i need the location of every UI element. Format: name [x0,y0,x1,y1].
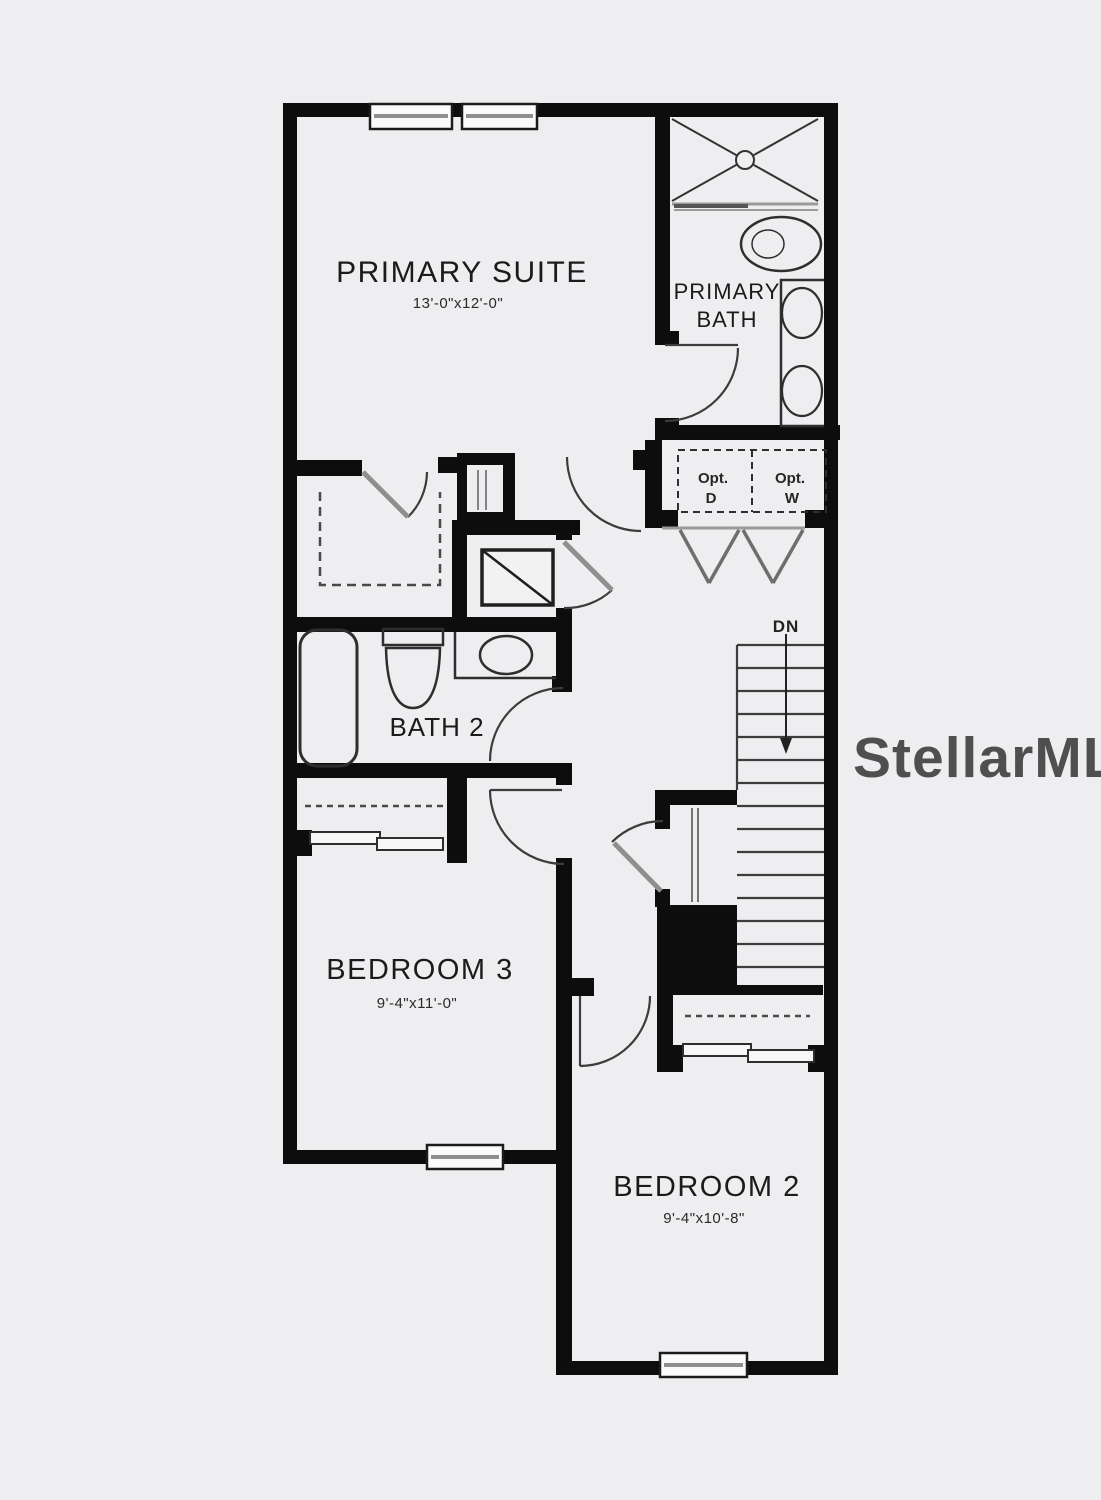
bedroom2-dimensions: 9'-4"x10'-8" [663,1210,745,1227]
primary-bath-label-line1: PRIMARY [674,279,781,304]
bypass-door [748,1050,814,1062]
opt-washer-label-line1: Opt. [775,470,805,487]
primary-suite-label: PRIMARY SUITE [336,256,588,289]
bath2-label: BATH 2 [389,712,484,742]
stairs-dn-label: DN [773,617,800,636]
primary-bath-label-line2: BATH [696,307,757,332]
window-bedroom-2 [660,1353,747,1377]
primary-suite-dimensions: 13'-0"x12'-0" [413,295,503,312]
bypass-door [683,1044,751,1056]
mechanical-box [482,550,553,605]
window-primary-suite-2 [462,104,537,129]
bedroom2-label: BEDROOM 2 [613,1171,801,1203]
opt-dryer-label-line1: Opt. [698,470,728,487]
window-bedroom-3 [427,1145,503,1169]
bedroom3-label: BEDROOM 3 [326,954,514,986]
window-primary-suite-1 [370,104,452,129]
opt-washer-label-line2: W [785,490,800,507]
bedroom3-dimensions: 9'-4"x11'-0" [377,995,457,1012]
floor-plan: PRIMARY SUITE 13'-0"x12'-0" PRIMARY BATH… [0,0,1101,1500]
opt-dryer-label-line2: D [706,490,717,507]
bypass-door [310,832,380,844]
bypass-door [377,838,443,850]
floor-plan-page: PRIMARY SUITE 13'-0"x12'-0" PRIMARY BATH… [0,0,1101,1500]
stellar-mls-watermark: StellarMLS [853,726,1101,790]
